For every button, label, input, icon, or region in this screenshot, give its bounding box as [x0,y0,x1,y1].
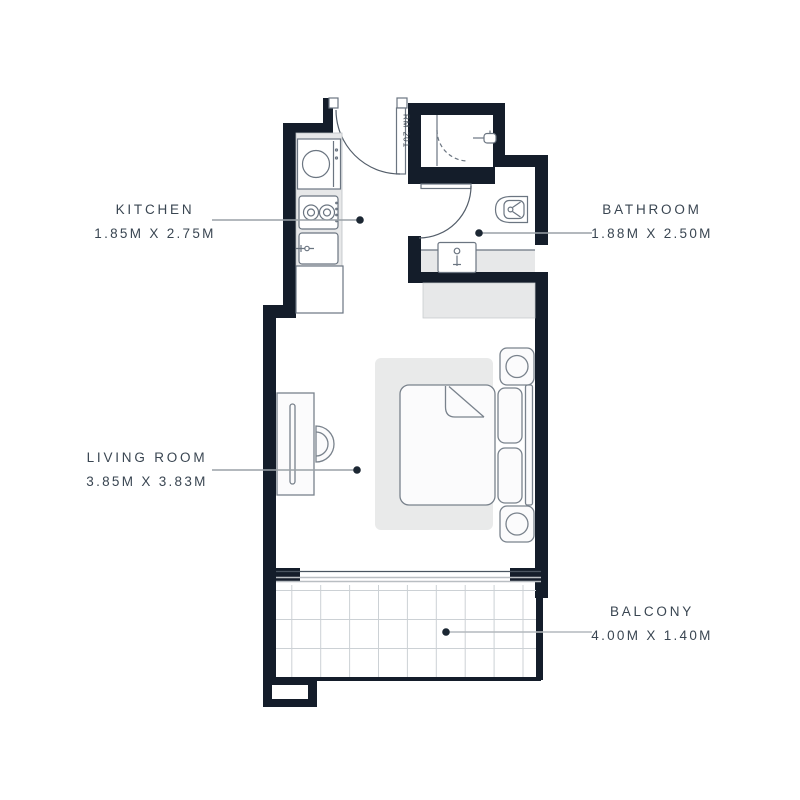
balcony-ledge-opening [272,685,308,699]
unit-number-label: RM 201 [402,114,411,148]
nightstand-bottom [500,506,534,542]
bed-icon [400,385,533,505]
room-name: BALCONY [552,604,752,619]
balcony-tile-grid [276,585,536,677]
kitchen-cabinet [296,266,343,313]
pillow [498,448,522,503]
desk-icon [277,393,314,495]
headboard [526,385,533,505]
bathroom-label: BATHROOM 1.88M X 2.50M [552,202,752,241]
entry-door-swing-arc [336,110,400,174]
bathroom [419,115,535,273]
wardrobe [423,283,535,318]
room-name: BATHROOM [552,202,752,217]
living-room-label: LIVING ROOM 3.85M X 3.83M [47,450,247,489]
pillow [498,388,522,443]
floor-plan-drawing: RM 201 [0,0,800,800]
living-room-leader-dot [353,466,361,474]
bathroom-leader-dot [475,229,483,237]
kitchen [296,133,343,313]
toilet-icon [496,197,528,223]
room-name: LIVING ROOM [47,450,247,465]
floor-plan-page: RM 201 [0,0,800,800]
washing-machine-icon [298,139,341,189]
balcony [276,572,541,678]
kitchen-label: KITCHEN 1.85M X 2.75M [55,202,255,241]
balcony-label: BALCONY 4.00M X 1.40M [552,604,752,643]
kitchen-sink-icon [296,233,338,264]
room-dimensions: 1.88M X 2.50M [552,226,752,241]
living-room [277,348,534,542]
room-dimensions: 3.85M X 3.83M [47,474,247,489]
nightstand-top [500,348,534,385]
stove-icon [299,196,338,229]
balcony-leader-dot [442,628,450,636]
door-jamb-left [329,98,338,108]
room-dimensions: 4.00M X 1.40M [552,628,752,643]
chair-icon [316,426,334,462]
room-dimensions: 1.85M X 2.75M [55,226,255,241]
bathroom-sink-icon [438,243,476,273]
door-jamb-right [397,98,407,108]
kitchen-leader-dot [356,216,364,224]
room-name: KITCHEN [55,202,255,217]
bathroom-door-leaf [421,184,471,189]
bathroom-door-swing-arc [419,186,471,238]
bathroom-door [419,184,471,238]
shower-icon [437,115,496,166]
